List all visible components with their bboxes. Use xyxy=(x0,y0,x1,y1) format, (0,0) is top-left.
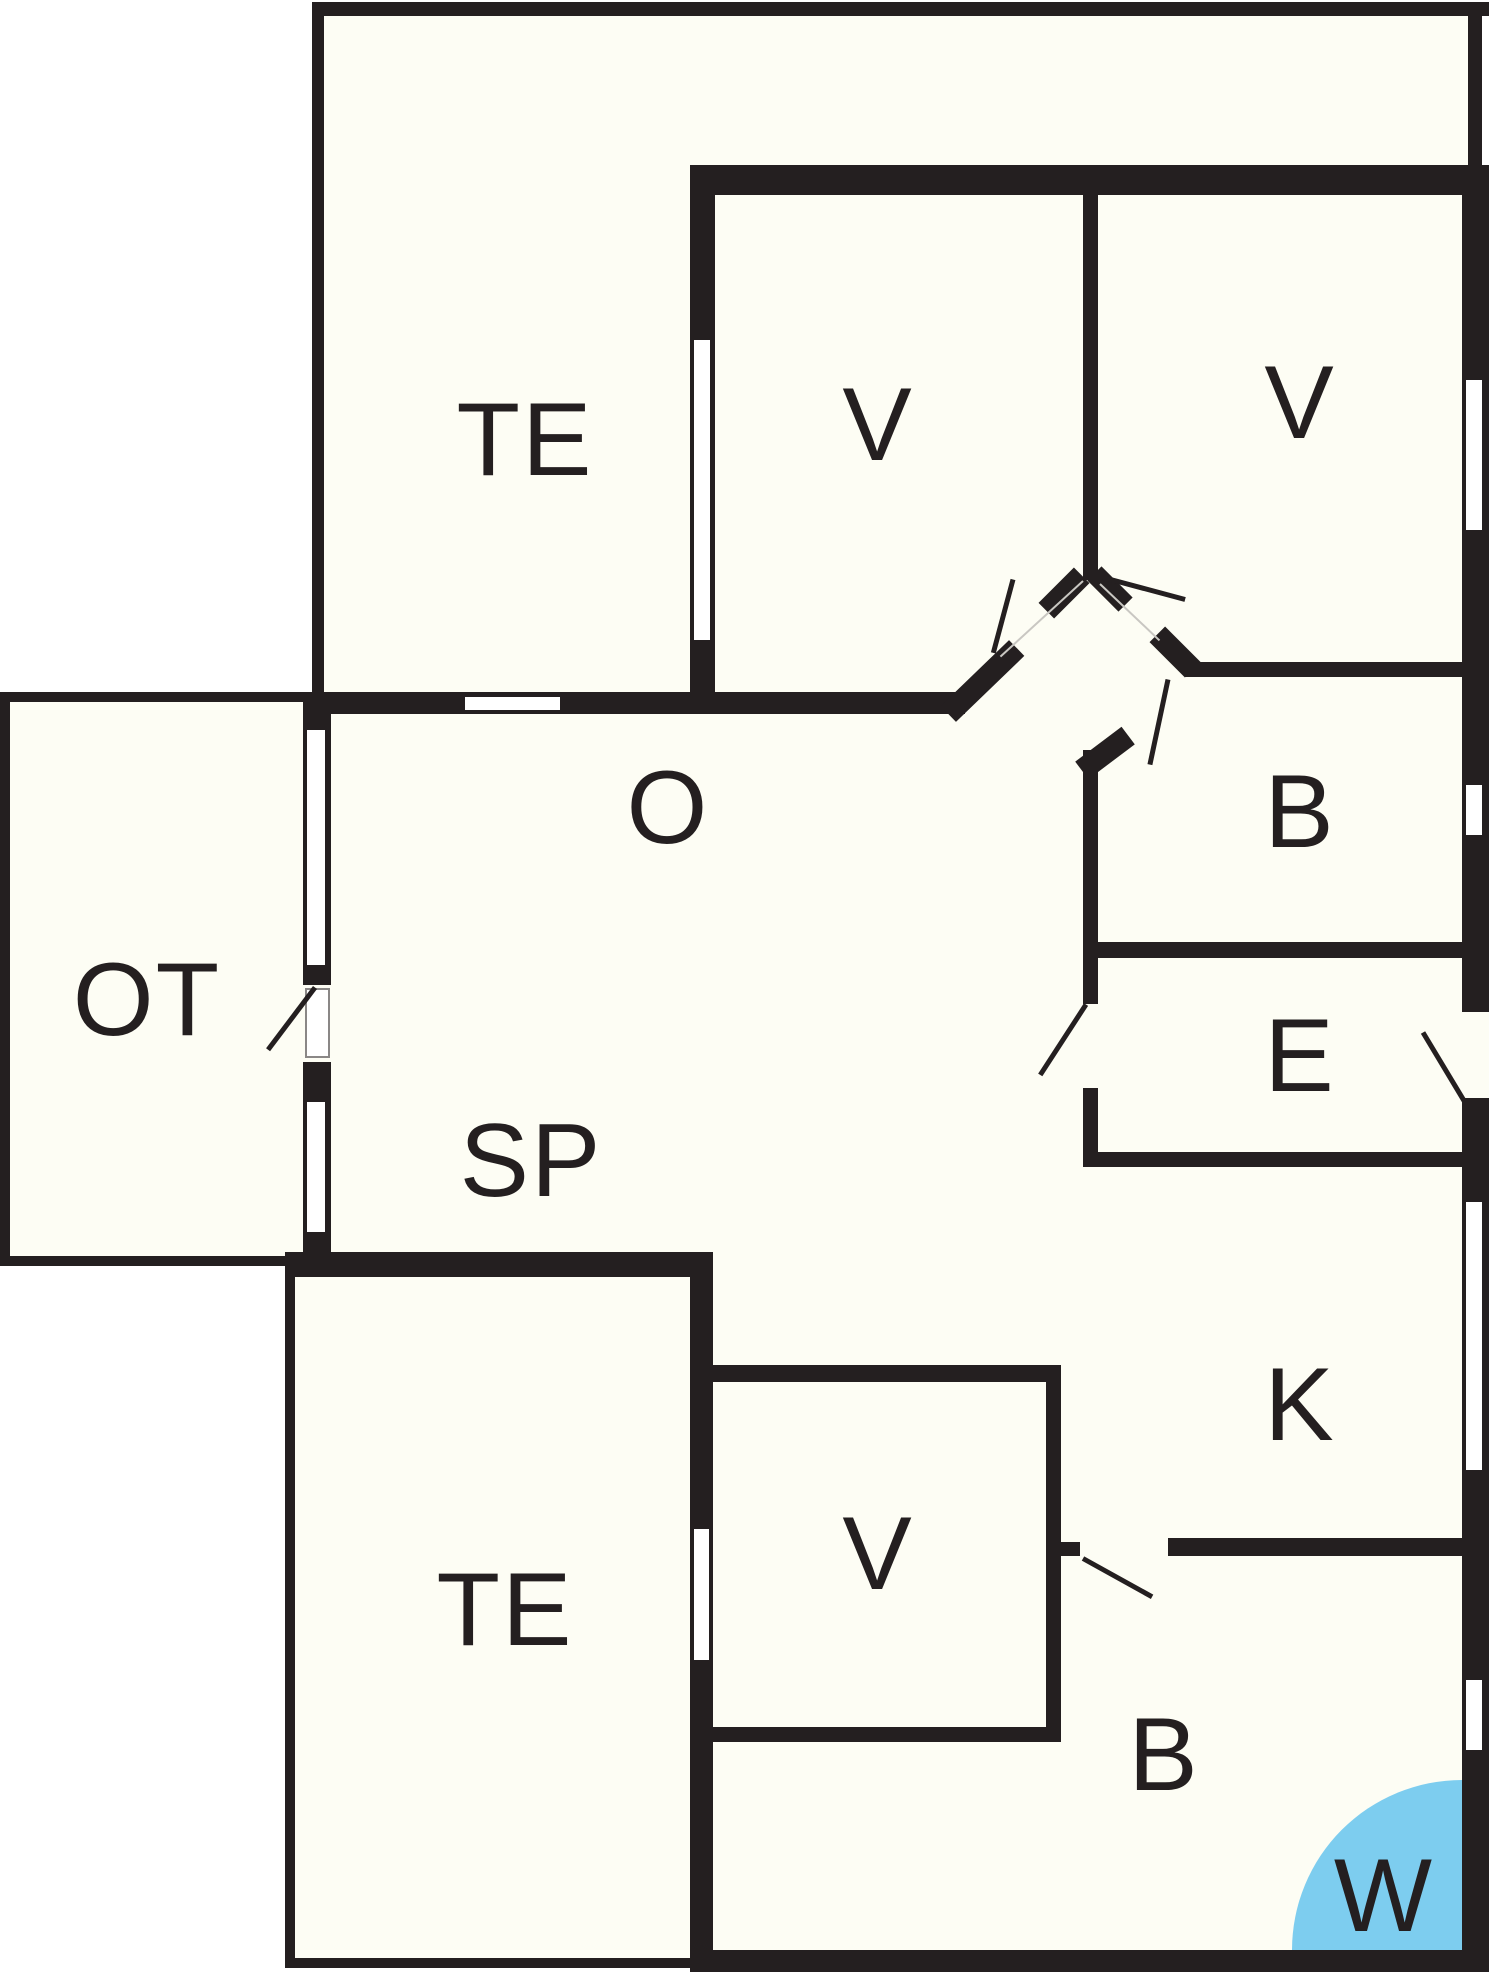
room-label-whirlpool: W xyxy=(1334,1844,1434,1948)
wall-terrace-south-bottom xyxy=(285,1958,713,1968)
window-living-west xyxy=(307,730,325,965)
wall-terrace-south-left xyxy=(285,1277,295,1968)
wall-north-block-bottom xyxy=(303,692,965,714)
wall-bedroom-south-bottom xyxy=(713,1727,1061,1742)
room-label-bathroom-north: B xyxy=(1264,760,1335,864)
wall-outer-top xyxy=(312,2,1489,16)
room-label-bedroom-ne: V xyxy=(1264,351,1335,455)
wall-ot-top xyxy=(0,692,303,702)
room-label-terrace-south: TE xyxy=(437,1558,574,1662)
wall-bedroom-divider xyxy=(1083,195,1098,580)
window-bedroom-ne xyxy=(1466,380,1482,530)
room-label-entrance: E xyxy=(1264,1004,1335,1108)
window-terrace-bedroom xyxy=(694,340,710,640)
wall-bedroom-south-right xyxy=(1046,1365,1061,1742)
room-label-covered-terrace: OT xyxy=(73,948,221,1052)
wall-south-block-top xyxy=(285,1252,713,1277)
wall-entrance-left-upper xyxy=(1083,958,1098,1004)
wall-ot-left xyxy=(0,692,10,1266)
wall-bath-north-left xyxy=(1083,750,1098,958)
window-terrace-south xyxy=(694,1529,709,1660)
wall-stub-bath-south xyxy=(1061,1542,1080,1556)
window-bath-south xyxy=(1466,1680,1482,1750)
room-label-bathroom-south: B xyxy=(1128,1703,1199,1807)
room-label-bedroom-nw: V xyxy=(842,373,913,477)
room-label-terrace-north: TE xyxy=(457,388,594,492)
wall-ot-bottom xyxy=(0,1256,285,1266)
wall-bath-north-bottom xyxy=(1083,942,1462,958)
room-label-kitchen: K xyxy=(1264,1353,1335,1457)
wall-kitchen-bath-south xyxy=(1168,1538,1462,1556)
room-label-dining: SP xyxy=(460,1109,603,1213)
window-kitchen xyxy=(1466,1202,1482,1470)
wall-bedrooms-top xyxy=(690,165,1489,195)
window-dining-west xyxy=(307,1102,325,1232)
wall-entrance-bottom xyxy=(1083,1152,1462,1167)
window-terrace-north xyxy=(465,697,560,710)
wall-terrace-north-right xyxy=(1468,2,1482,169)
door-gap-entrance-outer xyxy=(1462,1012,1489,1098)
wall-bedroom-south-top xyxy=(713,1365,1061,1382)
wall-terrace-north-left xyxy=(312,2,324,714)
window-bath-north xyxy=(1466,785,1482,835)
floor-plan: TE V V O OT B E SP K TE V B W xyxy=(0,0,1489,1980)
wall-bath-north-top xyxy=(1185,662,1462,677)
room-label-bedroom-south: V xyxy=(842,1502,913,1606)
room-label-livingroom: O xyxy=(627,756,710,860)
